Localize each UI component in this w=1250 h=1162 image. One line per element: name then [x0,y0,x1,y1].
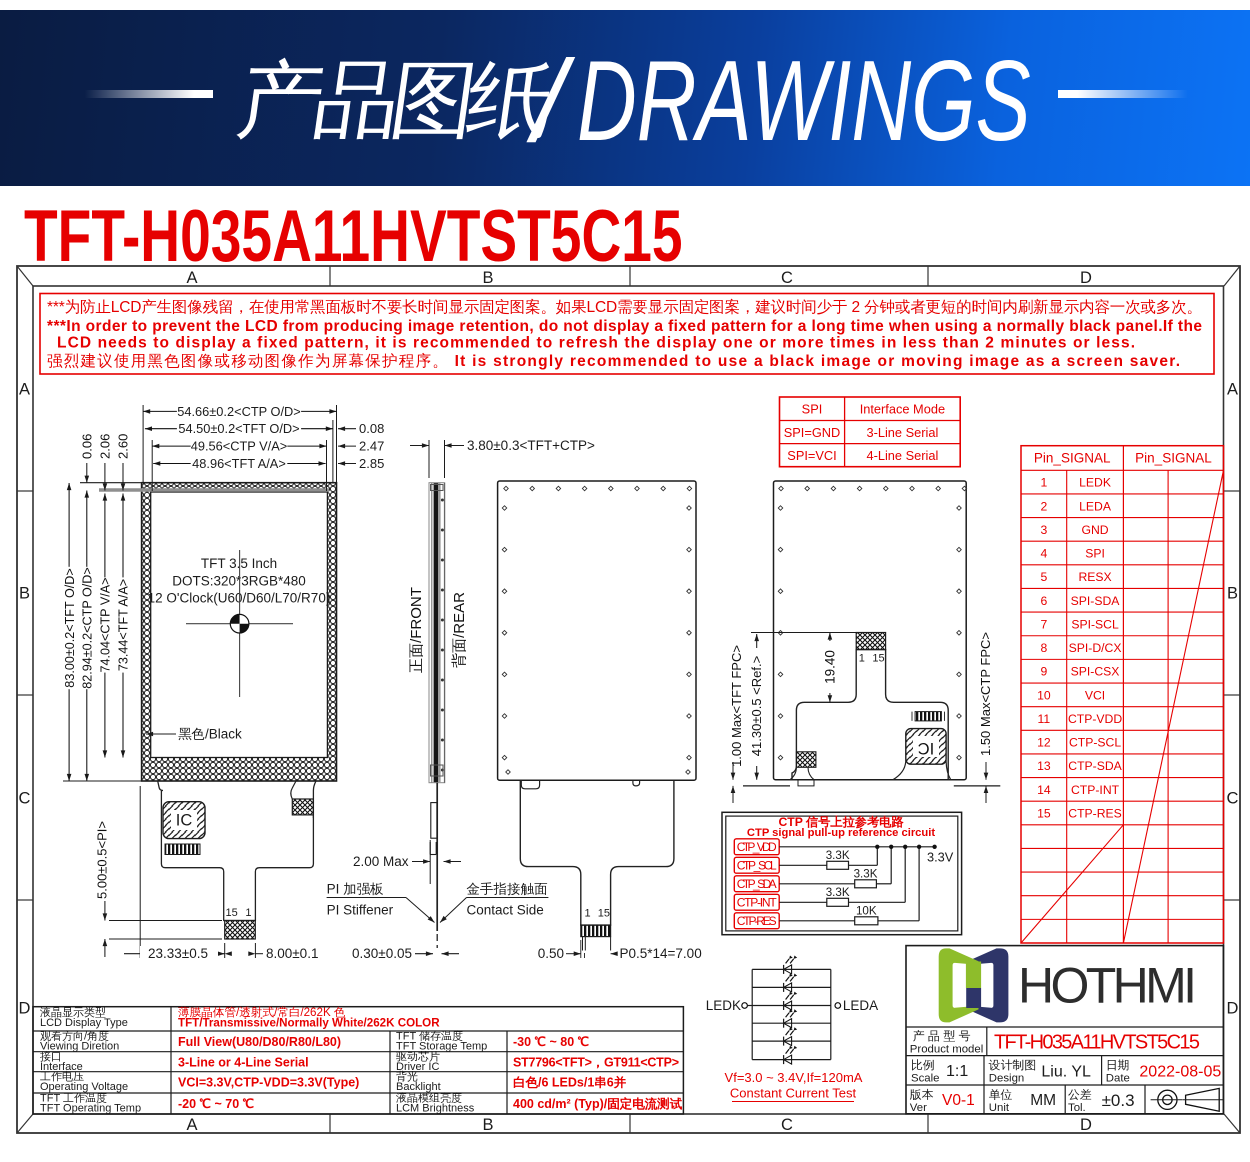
svg-text:0.06: 0.06 [80,434,95,459]
svg-text:PI Stiffener: PI Stiffener [327,903,394,918]
svg-text:14: 14 [1037,783,1051,797]
svg-text:日期: 日期 [1106,1058,1130,1072]
svg-text:强烈建议使用黑色图像或移动图像作为屏幕保护程序。 It is: 强烈建议使用黑色图像或移动图像作为屏幕保护程序。 It is strongly … [47,352,1180,370]
svg-text:TFT/Transmissive/Normally Whit: TFT/Transmissive/Normally White/262K COL… [178,1017,440,1030]
svg-text:Interface Mode: Interface Mode [860,402,945,417]
svg-text:CTP-RES: CTP-RES [737,914,777,928]
svg-text:Contact Side: Contact Side [467,903,544,918]
svg-text:***In order to prevent the LCD: ***In order to prevent the LCD from prod… [47,318,1202,335]
svg-text:ST7796<TFT>，GT911<CTP>: ST7796<TFT>，GT911<CTP> [513,1056,679,1070]
svg-text:-30 ℃ ~ 80 ℃: -30 ℃ ~ 80 ℃ [513,1035,589,1049]
svg-text:B: B [19,585,30,603]
svg-text:11: 11 [1038,712,1051,726]
svg-text:GND: GND [1082,523,1109,537]
svg-text:SPI-SCL: SPI-SCL [1071,617,1119,631]
svg-text:D: D [1227,1000,1239,1018]
svg-text:IC: IC [176,812,193,830]
svg-text:PI 加强板: PI 加强板 [327,882,384,897]
svg-text:0.50: 0.50 [538,946,564,961]
svg-text:***为防止LCD产生图像残留，在使用常黑面板时不要长时间显: ***为防止LCD产生图像残留，在使用常黑面板时不要长时间显示固定图案。如果LC… [47,298,1202,316]
svg-text:单位: 单位 [989,1088,1013,1102]
svg-text:-20 ℃ ~ 70 ℃: -20 ℃ ~ 70 ℃ [178,1097,254,1111]
svg-text:15: 15 [872,652,884,664]
svg-text:19.40: 19.40 [823,650,838,684]
svg-text:Product model: Product model [910,1044,983,1056]
svg-text:HOTHMI: HOTHMI [1018,958,1197,1014]
svg-text:10: 10 [1037,688,1051,702]
svg-text:A: A [1227,381,1238,399]
svg-text:±0.3: ±0.3 [1102,1091,1135,1110]
svg-text:黑色/Black: 黑色/Black [178,727,242,742]
svg-text:公差: 公差 [1068,1088,1092,1102]
svg-text:TFT-H035A11HVTST5C15: TFT-H035A11HVTST5C15 [994,1032,1200,1054]
svg-text:CTP-INT: CTP-INT [1071,783,1120,797]
svg-text:0.08: 0.08 [359,421,384,436]
svg-text:Date: Date [1106,1073,1130,1085]
svg-text:A: A [186,1116,197,1134]
svg-text:5: 5 [1040,570,1047,584]
svg-text:1.50 Max<CTP FPC>: 1.50 Max<CTP FPC> [978,632,993,756]
svg-text:背面/REAR: 背面/REAR [451,592,468,668]
svg-text:LEDA: LEDA [843,998,878,1013]
svg-text:400 cd/m² (Typ)/固定电流测试: 400 cd/m² (Typ)/固定电流测试 [513,1097,683,1111]
svg-text:10K: 10K [856,904,877,917]
svg-text:CTP-SDA: CTP-SDA [1068,759,1122,773]
svg-text:2.85: 2.85 [359,456,384,471]
svg-text:3.3K: 3.3K [854,867,878,880]
svg-text:比例: 比例 [911,1058,935,1072]
svg-text:5.00±0.5<PI>: 5.00±0.5<PI> [95,821,110,899]
svg-text:SPI=GND: SPI=GND [784,425,841,440]
svg-text:23.33±0.5: 23.33±0.5 [148,946,208,961]
svg-text:2.60: 2.60 [116,434,131,459]
svg-text:TFT 3.5 Inch: TFT 3.5 Inch [201,556,277,571]
svg-text:1: 1 [859,652,865,664]
svg-text:金手指接触面: 金手指接触面 [467,882,549,897]
svg-text:白色/6 LEDs/1串6并: 白色/6 LEDs/1串6并 [513,1076,627,1090]
svg-text:4-Line Serial: 4-Line Serial [866,448,938,463]
svg-text:2.47: 2.47 [359,439,384,454]
svg-text:Full View(U80/D80/R80/L80): Full View(U80/D80/R80/L80) [178,1035,341,1049]
svg-text:Scale: Scale [911,1073,940,1085]
svg-text:8.00±0.1: 8.00±0.1 [266,946,318,961]
svg-text:CTP-VDD: CTP-VDD [1068,712,1122,726]
svg-text:CTP-INT: CTP-INT [737,896,778,910]
svg-text:CTP_SCL: CTP_SCL [737,859,777,873]
svg-text:3.3K: 3.3K [826,849,850,862]
svg-text:3.3V: 3.3V [927,850,954,865]
svg-text:LCD needs to display a fixed p: LCD needs to display a fixed pattern, it… [57,335,1135,352]
svg-text:A: A [19,381,30,399]
svg-text:V0-1: V0-1 [942,1092,975,1109]
svg-text:P0.5*14=7.00: P0.5*14=7.00 [620,946,702,961]
svg-text:CTP-RES: CTP-RES [1068,807,1122,821]
svg-text:3-Line Serial: 3-Line Serial [866,425,938,440]
svg-text:B: B [482,269,493,287]
svg-text:D: D [1080,1116,1092,1134]
svg-text:TFT Operating Temp: TFT Operating Temp [40,1103,141,1115]
svg-text:C: C [781,1116,793,1134]
svg-text:2: 2 [1040,499,1047,513]
svg-text:Design: Design [989,1073,1024,1085]
svg-text:正面/FRONT: 正面/FRONT [408,587,425,673]
svg-text:49.56<CTP V/A>: 49.56<CTP V/A> [191,439,288,454]
svg-text:IC: IC [918,739,935,757]
svg-text:CTP signal pull-up reference c: CTP signal pull-up reference circuit [747,827,935,839]
svg-text:Pin_SIGNAL: Pin_SIGNAL [1034,451,1111,466]
svg-text:VCI=3.3V,CTP-VDD=3.3V(Type): VCI=3.3V,CTP-VDD=3.3V(Type) [178,1076,359,1090]
svg-text:41.30±0.5 <Ref.>: 41.30±0.5 <Ref.> [749,656,764,756]
svg-text:15: 15 [598,908,610,920]
svg-text:6: 6 [1040,594,1047,608]
svg-text:82.94±0.2<CTP O/D>: 82.94±0.2<CTP O/D> [81,567,95,689]
svg-text:Ver: Ver [910,1102,927,1114]
svg-text:1: 1 [245,907,251,919]
svg-text:Unit: Unit [989,1102,1010,1114]
svg-text:CTP-SCL: CTP-SCL [1069,736,1121,750]
svg-text:1:1: 1:1 [946,1063,968,1080]
svg-text:13: 13 [1037,759,1051,773]
svg-text:54.50±0.2<TFT O/D>: 54.50±0.2<TFT O/D> [178,421,299,436]
svg-text:产 品 型 号: 产 品 型 号 [913,1029,971,1043]
svg-text:15: 15 [1037,807,1051,821]
svg-text:Tol.: Tol. [1068,1102,1086,1114]
svg-text:Constant Current Test: Constant Current Test [730,1086,857,1101]
svg-text:SPI-SDA: SPI-SDA [1071,594,1121,608]
svg-text:12: 12 [1037,736,1051,750]
svg-text:4: 4 [1040,547,1047,561]
svg-text:Liu. YL: Liu. YL [1041,1064,1091,1081]
svg-text:MM: MM [1030,1092,1056,1109]
svg-text:1: 1 [584,908,590,920]
svg-text:Pin_SIGNAL: Pin_SIGNAL [1135,451,1212,466]
svg-text:73.44<TFT A/A>: 73.44<TFT A/A> [117,579,131,671]
svg-text:CTP_VDD: CTP_VDD [737,840,777,854]
svg-text:SPI: SPI [1085,547,1105,561]
svg-text:A: A [186,269,197,287]
svg-text:D: D [19,1000,31,1018]
svg-text:9: 9 [1040,665,1047,679]
svg-text:版本: 版本 [910,1088,934,1102]
svg-text:LEDK: LEDK [1079,476,1111,490]
svg-text:SPI=VCI: SPI=VCI [787,448,836,463]
svg-text:B: B [1227,585,1238,603]
svg-text:DOTS:320*3RGB*480: DOTS:320*3RGB*480 [172,574,306,589]
svg-text:54.66±0.2<CTP O/D>: 54.66±0.2<CTP O/D> [177,404,300,419]
svg-text:3.80±0.3<TFT+CTP>: 3.80±0.3<TFT+CTP> [467,438,595,453]
svg-text:C: C [19,790,31,808]
svg-text:8: 8 [1040,641,1047,655]
svg-text:7: 7 [1040,617,1047,631]
svg-text:设计制图: 设计制图 [989,1058,1036,1072]
svg-text:1.00 Max<TFT FPC>: 1.00 Max<TFT FPC> [729,645,744,767]
svg-text:12 O'Clock(U60/D60/L70/R70): 12 O'Clock(U60/D60/L70/R70) [148,591,331,606]
svg-text:D: D [1080,269,1092,287]
svg-text:1: 1 [1040,476,1047,490]
svg-text:Vf=3.0 ~ 3.4V,If=120mA: Vf=3.0 ~ 3.4V,If=120mA [725,1070,863,1085]
svg-text:3.3K: 3.3K [826,886,850,899]
svg-text:2.06: 2.06 [98,434,113,459]
svg-text:48.96<TFT A/A>: 48.96<TFT A/A> [192,456,286,471]
svg-text:SPI-CSX: SPI-CSX [1071,665,1120,679]
svg-text:2.00 Max: 2.00 Max [353,854,409,869]
svg-text:B: B [482,1116,493,1134]
svg-text:RESX: RESX [1078,570,1111,584]
svg-text:VCI: VCI [1085,688,1105,702]
svg-text:C: C [781,269,793,287]
svg-text:CTP_SDA: CTP_SDA [737,877,777,891]
svg-text:LCM Brightness: LCM Brightness [396,1103,475,1115]
svg-text:C: C [1227,790,1239,808]
svg-text:3-Line or 4-Line Serial: 3-Line or 4-Line Serial [178,1056,309,1070]
svg-text:SPI-D/CX: SPI-D/CX [1069,641,1122,655]
svg-text:2022-08-05: 2022-08-05 [1139,1064,1221,1081]
svg-text:74.04<CTP V/A>: 74.04<CTP V/A> [99,578,113,673]
svg-text:83.00±0.2<TFT O/D>: 83.00±0.2<TFT O/D> [63,568,77,687]
svg-text:LCD Display Type: LCD Display Type [40,1017,128,1029]
svg-text:LEDA: LEDA [1079,499,1112,513]
svg-text:LEDK: LEDK [706,998,741,1013]
svg-text:15: 15 [225,907,237,919]
svg-text:3: 3 [1040,523,1047,537]
svg-text:SPI: SPI [802,402,823,417]
svg-text:0.30±0.05: 0.30±0.05 [352,946,412,961]
